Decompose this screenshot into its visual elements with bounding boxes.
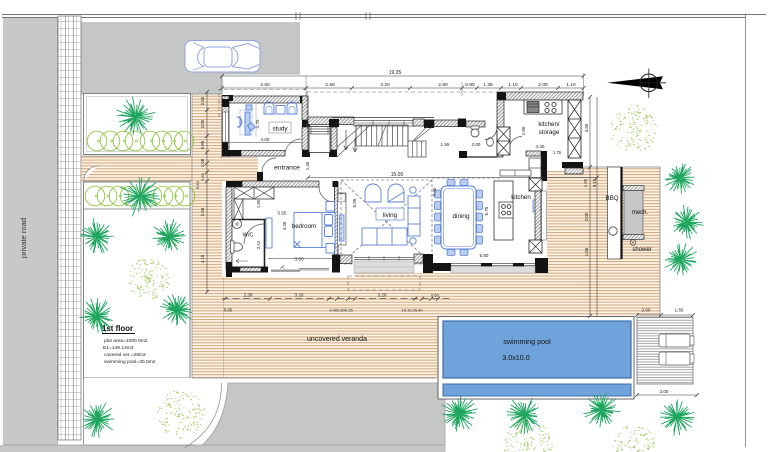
svg-text:3.20: 3.20 [295, 293, 304, 298]
svg-text:7.40: 7.40 [432, 187, 437, 196]
svg-text:3.20: 3.20 [380, 82, 390, 88]
svg-text:study: study [272, 126, 288, 133]
svg-text:2.80: 2.80 [438, 82, 448, 88]
svg-text:4.30: 4.30 [536, 144, 545, 149]
svg-text:1.35: 1.35 [483, 82, 493, 88]
svg-text:5.55: 5.55 [352, 198, 357, 207]
svg-text:2.00: 2.00 [200, 119, 205, 128]
svg-text:19.35: 19.35 [389, 70, 402, 76]
svg-text:living: living [383, 212, 398, 219]
svg-text:0.60: 0.60 [431, 293, 440, 298]
svg-text:2.30: 2.30 [244, 293, 253, 298]
svg-text:2.00: 2.00 [584, 212, 589, 221]
svg-text:2.50: 2.50 [325, 82, 335, 88]
svg-text:3.50: 3.50 [294, 257, 304, 263]
svg-text:covered ver.=28m2: covered ver.=28m2 [104, 352, 146, 358]
svg-text:0.60: 0.60 [200, 96, 205, 105]
svg-text:2.00: 2.00 [472, 142, 481, 147]
svg-text:4.50: 4.50 [260, 82, 270, 88]
svg-text:19.10.25.90: 19.10.25.90 [401, 308, 423, 313]
svg-text:2.55: 2.55 [200, 207, 205, 216]
svg-text:kitchen: kitchen [511, 194, 531, 201]
svg-text:1.85: 1.85 [256, 199, 261, 208]
svg-text:swimming pool=30.0m2: swimming pool=30.0m2 [104, 359, 156, 365]
svg-text:plot area=1000.0m2: plot area=1000.0m2 [104, 338, 148, 344]
svg-text:private road: private road [19, 218, 28, 258]
svg-text:BBQ: BBQ [605, 195, 618, 202]
svg-text:2.65: 2.65 [521, 126, 526, 135]
svg-text:5.80: 5.80 [480, 253, 489, 258]
svg-text:9.50: 9.50 [195, 180, 200, 189]
svg-text:2.75: 2.75 [255, 119, 260, 128]
svg-text:uncovered veranda: uncovered veranda [307, 336, 367, 343]
svg-text:2.00: 2.00 [538, 82, 548, 88]
svg-text:dining: dining [452, 213, 470, 220]
svg-text:5.55: 5.55 [278, 211, 287, 216]
svg-text:0.80: 0.80 [224, 308, 233, 313]
svg-text:2.42: 2.42 [256, 240, 261, 249]
svg-text:1.55: 1.55 [441, 142, 450, 147]
svg-text:1.10: 1.10 [508, 82, 518, 88]
svg-text:1.10: 1.10 [566, 82, 576, 88]
svg-text:0.80: 0.80 [465, 82, 475, 88]
svg-text:9.15: 9.15 [592, 178, 597, 187]
svg-text:swimming pool: swimming pool [503, 337, 551, 346]
svg-text:1.65: 1.65 [675, 308, 684, 313]
svg-text:shower: shower [632, 247, 651, 253]
svg-text:3.20: 3.20 [378, 293, 387, 298]
svg-text:3.85: 3.85 [584, 123, 589, 132]
svg-text:1.85: 1.85 [583, 178, 588, 187]
svg-text:4.35: 4.35 [282, 221, 287, 230]
svg-text:4.00: 4.00 [261, 137, 270, 142]
svg-text:mech.: mech. [632, 210, 649, 216]
svg-text:5.75: 5.75 [484, 206, 489, 215]
svg-text:1st floor: 1st floor [102, 324, 133, 333]
svg-text:1.75: 1.75 [553, 150, 562, 155]
svg-text:W/C: W/C [243, 233, 254, 239]
svg-text:kitchen/: kitchen/ [538, 121, 560, 128]
svg-text:3.00: 3.00 [660, 389, 669, 394]
svg-text:bedroom: bedroom [292, 223, 316, 230]
svg-text:E1=149.12m2: E1=149.12m2 [103, 345, 134, 351]
svg-text:0.40: 0.40 [200, 172, 205, 181]
svg-text:storage: storage [539, 129, 560, 136]
svg-text:0.85: 0.85 [200, 140, 205, 149]
svg-text:1.65: 1.65 [584, 247, 589, 256]
svg-text:2.00: 2.00 [642, 308, 651, 313]
svg-text:1.00: 1.00 [200, 158, 205, 167]
svg-text:3.0x10.0: 3.0x10.0 [502, 353, 530, 362]
svg-text:4.15: 4.15 [200, 254, 205, 263]
svg-text:entrance: entrance [274, 165, 300, 172]
svg-text:0.400.600.25: 0.400.600.25 [329, 308, 353, 313]
svg-text:1.40: 1.40 [305, 161, 310, 170]
svg-text:15.00: 15.00 [391, 172, 404, 178]
